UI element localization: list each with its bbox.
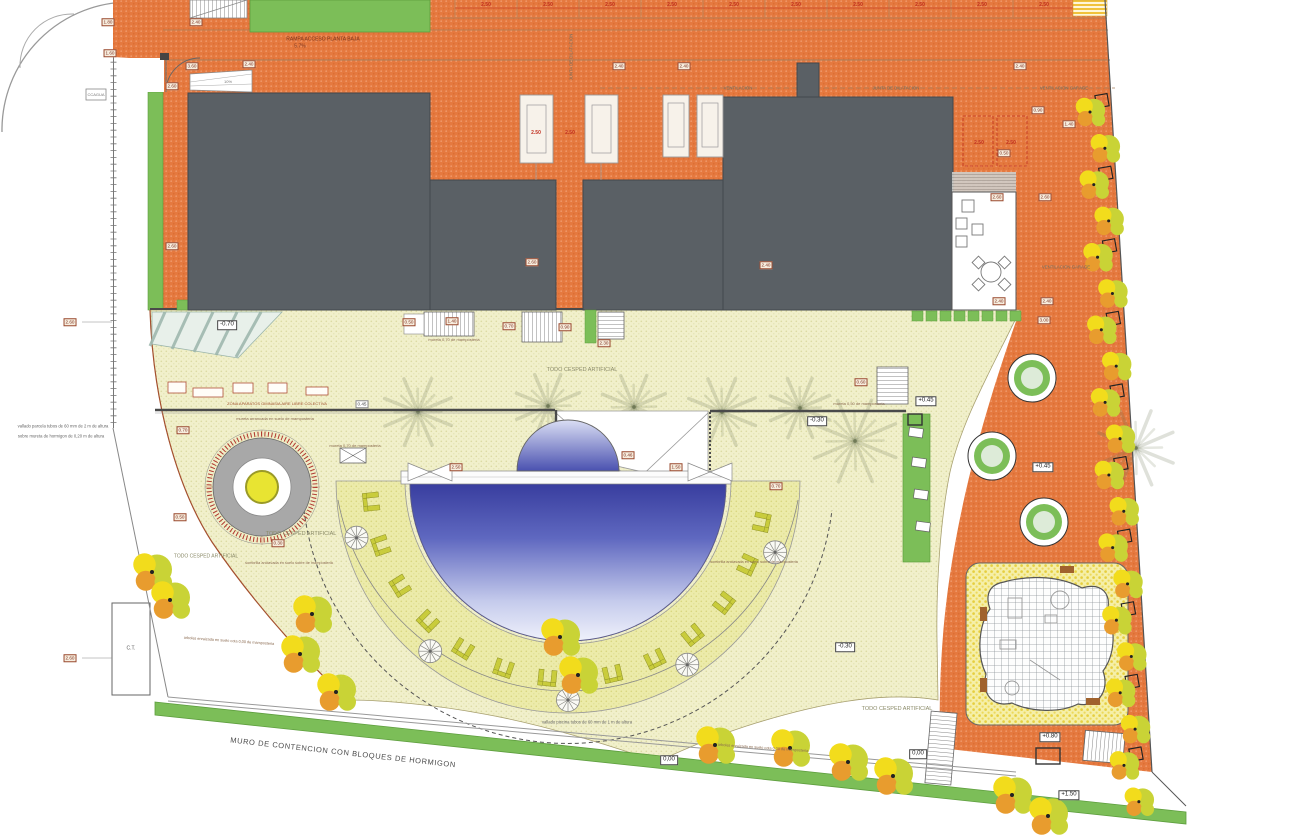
dimension-dm18: 2.60 (1039, 193, 1052, 201)
dimension-dm34: 2.60 (64, 654, 77, 662)
plan-label-ccagua: CCAGUA (87, 93, 104, 97)
dimension-dm36: 3.00 (1038, 316, 1051, 324)
dimension-dm3: 2.40 (190, 18, 203, 26)
dimension-dm23: 0.90 (559, 323, 572, 331)
parking-dimension: 2.50 (1039, 2, 1049, 8)
dimension-dm6: 2.40 (243, 60, 256, 68)
parking-dimension: 2.50 (791, 2, 801, 8)
dimension-dm4: 3.60 (186, 62, 199, 70)
dimension-dm40: 2.50 (973, 140, 985, 146)
dimension-dm24: 2.30 (598, 339, 611, 347)
dimension-dm38: 2.50 (530, 130, 542, 136)
parking-dimension: 2.50 (915, 2, 925, 8)
plan-label-sombrilla1: sombrilla anclavada en suelo sobre de ma… (245, 561, 333, 565)
plan-label-mureta1: mureta arrancada en suelo de mamposteria (236, 417, 314, 421)
dimension-dm21: 1.40 (446, 317, 459, 325)
dimension-dm13: 0.90 (1032, 106, 1045, 114)
level-marker-lv3: +0.45 (1032, 462, 1053, 472)
labels-layer: RAMPA ACCESO PLANTA BAJA5.7%VENTILACIONJ… (0, 0, 1290, 840)
dimension-dm2: 1.60 (104, 49, 117, 57)
plan-label-vallado1: vallado parcela tubos de 60 mm de 2 m de… (18, 425, 109, 430)
dimension-dm33: 2.60 (64, 318, 77, 326)
dimension-dm25: 0.45 (356, 400, 369, 408)
dimension-dm10: 2.60 (526, 258, 539, 266)
plan-label-vallado2: sobre mureta de hormigon de 0,20 m de al… (18, 435, 104, 440)
plan-label-rampa_pct: 5.7% (294, 44, 305, 50)
dimension-dm7: 2.60 (166, 242, 179, 250)
plan-label-cesped2: TODO CESPED ARTIFICIAL (266, 531, 337, 537)
level-marker-lv7: 0,00 (909, 749, 927, 759)
dimension-dm17: 2.40 (993, 297, 1006, 305)
plan-label-junta1: JUNTA DE DILATACION (873, 87, 920, 92)
parking-dimension: 2.50 (853, 2, 863, 8)
plan-label-ventgar1: VENTILACION GARAGE (1040, 87, 1088, 92)
level-marker-lv1: -0.70 (217, 320, 237, 330)
plan-label-cesped4: TODO CESPED ARTIFICIAL (862, 706, 933, 712)
plan-label-zona_aparatos: ZONA APARATOS GIMNASIA AIRE LIBRE COLECT… (227, 402, 327, 406)
dimension-dm11: 2.40 (760, 261, 773, 269)
level-marker-lv4: -0.30 (807, 416, 827, 426)
plan-label-muro: MURO DE CONTENCION CON BLOQUES DE HORMIG… (230, 736, 456, 769)
dimension-dm30: 1.50 (670, 463, 683, 471)
parking-dimension: 2.50 (977, 2, 987, 8)
dimension-dm28: 0.30 (272, 539, 285, 547)
plan-label-vallado_piscina: vallado piscina tubos de 60 mm de 1 m de… (542, 721, 632, 726)
dimension-dm26: 0.70 (177, 426, 190, 434)
dimension-dm8: 2.40 (613, 62, 626, 70)
plan-label-cesped1: TODO CESPED ARTIFICIAL (547, 367, 618, 373)
dimension-dm16: 2.60 (991, 193, 1004, 201)
level-marker-lv2: +0.45 (915, 396, 936, 406)
parking-dimension: 2.50 (729, 2, 739, 8)
plan-label-cesped3: TODO CESPED ARTIFICIAL (174, 554, 238, 560)
plan-label-mureta2: mureta 0,70 de mamposteria (329, 444, 380, 448)
level-marker-lv6: 0,00 (660, 755, 678, 765)
dimension-dm29: 2.50 (450, 463, 463, 471)
dimension-dm14: 1.40 (1063, 120, 1076, 128)
plan-label-ct: C.T. (127, 646, 136, 652)
dimension-dm5: 2.60 (166, 82, 179, 90)
dimension-dm15: 0.50 (998, 149, 1011, 157)
level-marker-lv9: +1.50 (1058, 790, 1079, 800)
dimension-dm39: 2.50 (564, 130, 576, 136)
dimension-dm9: 2.40 (678, 62, 691, 70)
plan-label-arboles2: arboles enraizada en suelo cota 0,00 de … (718, 743, 809, 753)
dimension-dm1: 1.80 (102, 18, 115, 26)
plan-label-ventgar2: VENTILACION GARAGE (1042, 266, 1090, 271)
site-plan: RAMPA ACCESO PLANTA BAJA5.7%VENTILACIONJ… (0, 0, 1290, 840)
dimension-dm32: 0.60 (855, 378, 868, 386)
dimension-dm22: 0.70 (503, 322, 516, 330)
dimension-dm35: 0.46 (622, 451, 635, 459)
plan-label-rampa: RAMPA ACCESO PLANTA BAJA (286, 37, 359, 43)
parking-dimension: 2.50 (667, 2, 677, 8)
dimension-dm20: 0.50 (403, 318, 416, 326)
plan-label-mureta4: mureta 0,50 de mamposteria (833, 402, 884, 406)
dimension-dm12: 2.40 (1014, 62, 1027, 70)
plan-label-sombrilla2: sombrilla anclavada en suelo sobre de ma… (710, 560, 798, 564)
plan-label-mureta3: mureta 0,70 de mamposteria (428, 338, 479, 342)
dimension-dm41: 2.50 (1005, 140, 1017, 146)
parking-dimension: 2.50 (543, 2, 553, 8)
plan-label-pct10: 10% (224, 80, 232, 84)
dimension-dm31: 0.70 (770, 482, 783, 490)
dimension-dm19: 2.40 (1041, 297, 1054, 305)
plan-label-arboles1: arboles enraizada en suelo cota 0,00 de … (184, 636, 275, 646)
level-marker-lv5: -0.30 (835, 642, 855, 652)
dimension-dm27: 0.50 (174, 513, 187, 521)
level-marker-lv8: +0.80 (1039, 732, 1060, 742)
parking-dimension: 2.50 (481, 2, 491, 8)
plan-label-vent1: VENTILACION (724, 87, 753, 92)
plan-label-junta2: JUNTA DE DILATACION (570, 34, 575, 81)
parking-dimension: 2.50 (605, 2, 615, 8)
